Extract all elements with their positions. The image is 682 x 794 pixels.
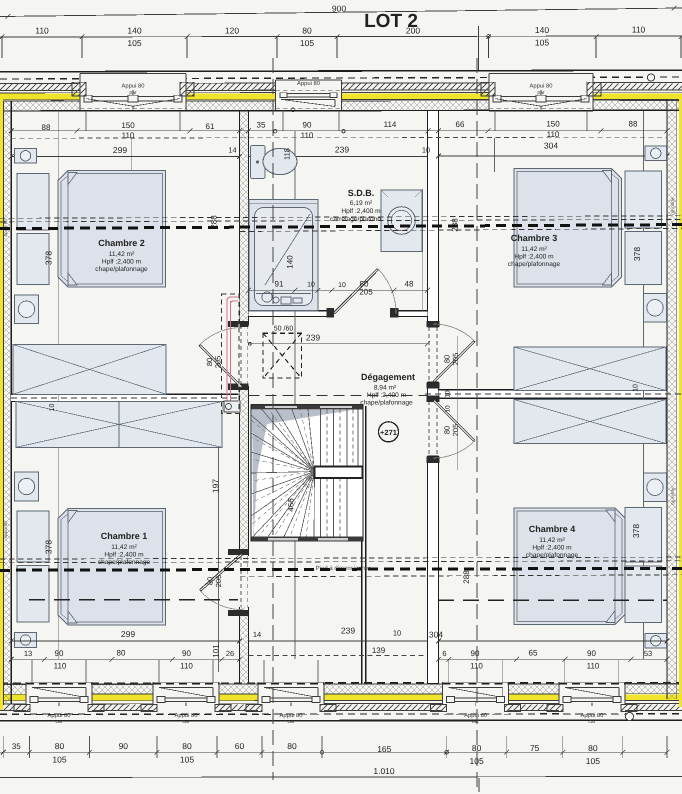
- svg-text:90: 90: [55, 649, 64, 658]
- svg-text:304: 304: [544, 141, 558, 151]
- svg-text:65: 65: [529, 649, 538, 658]
- svg-text:200: 200: [406, 26, 420, 36]
- svg-text:Dégagement: Dégagement: [361, 372, 415, 382]
- svg-text:80: 80: [55, 741, 65, 751]
- svg-text:11,42 m²: 11,42 m²: [111, 544, 137, 551]
- svg-text:110: 110: [632, 25, 646, 35]
- svg-text:Appui 80: Appui 80: [122, 83, 145, 90]
- svg-text:114: 114: [384, 120, 397, 129]
- svg-text:10: 10: [445, 405, 452, 413]
- svg-text:Appui 80: Appui 80: [530, 83, 553, 90]
- svg-text:Chambre 1: Chambre 1: [101, 531, 148, 541]
- svg-text:66: 66: [456, 120, 465, 129]
- svg-text:110: 110: [35, 26, 49, 36]
- svg-text:1.010: 1.010: [373, 766, 395, 776]
- svg-text:Hplf :2,400 m: Hplf :2,400 m: [532, 545, 572, 552]
- svg-text:110: 110: [587, 662, 600, 671]
- svg-text:10: 10: [393, 629, 401, 638]
- svg-text:Chambre 3: Chambre 3: [511, 233, 558, 243]
- svg-text:140: 140: [535, 25, 549, 35]
- svg-text:11,42 m²: 11,42 m²: [109, 251, 135, 258]
- svg-text:150: 150: [121, 121, 135, 130]
- svg-text:Hplf :2,400 m: Hplf :2,400 m: [104, 552, 144, 559]
- svg-text:239: 239: [306, 333, 320, 343]
- svg-text:88: 88: [629, 120, 638, 129]
- svg-text:Chambre 2: Chambre 2: [98, 238, 145, 248]
- svg-text:150: 150: [546, 120, 560, 129]
- svg-text:105: 105: [535, 38, 549, 48]
- svg-text:+271: +271: [380, 428, 397, 437]
- svg-text:chape/plafonnage: chape/plafonnage: [360, 400, 413, 407]
- svg-text:299: 299: [121, 629, 135, 639]
- svg-text:80: 80: [588, 743, 598, 753]
- svg-text:10: 10: [338, 282, 346, 289]
- svg-text:110: 110: [54, 662, 67, 671]
- svg-text:900: 900: [332, 4, 346, 14]
- svg-text:304: 304: [429, 630, 443, 640]
- svg-text:11,42 m²: 11,42 m²: [521, 246, 547, 253]
- svg-text:90: 90: [119, 741, 129, 751]
- svg-text:Hplf :2,400 m: Hplf :2,400 m: [102, 259, 142, 266]
- svg-text:139: 139: [372, 646, 386, 655]
- svg-text:car: car: [472, 719, 479, 725]
- svg-text:8,94 m²: 8,94 m²: [374, 385, 397, 392]
- svg-text:105: 105: [127, 38, 141, 48]
- svg-text:14: 14: [253, 630, 261, 639]
- svg-text:299: 299: [113, 145, 127, 155]
- svg-text:80: 80: [302, 26, 312, 36]
- svg-text:par: par: [129, 90, 137, 96]
- svg-text:48: 48: [405, 280, 414, 289]
- svg-text:car: car: [183, 719, 190, 725]
- svg-text:105: 105: [52, 755, 66, 765]
- svg-text:288: 288: [451, 218, 460, 232]
- svg-text:35: 35: [257, 121, 266, 130]
- svg-text:197: 197: [211, 479, 221, 493]
- svg-text:6,19 m²: 6,19 m²: [350, 200, 373, 207]
- svg-text:105: 105: [180, 755, 194, 765]
- svg-text:90: 90: [303, 121, 312, 130]
- svg-text:Hplf :2,400 m: Hplf :2,400 m: [341, 208, 381, 215]
- svg-text:car: car: [288, 719, 295, 725]
- svg-text:91: 91: [275, 280, 284, 289]
- svg-text:165: 165: [377, 744, 391, 754]
- svg-text:80: 80: [287, 741, 297, 751]
- svg-text:80: 80: [182, 741, 192, 751]
- svg-text:88: 88: [42, 123, 51, 132]
- svg-text:10: 10: [633, 384, 640, 392]
- svg-text:90: 90: [587, 649, 596, 658]
- svg-text:61: 61: [206, 122, 215, 131]
- svg-text:101: 101: [212, 644, 221, 658]
- svg-text:120: 120: [225, 26, 239, 36]
- svg-text:10: 10: [49, 404, 56, 412]
- svg-text:14: 14: [228, 146, 236, 155]
- svg-text:105: 105: [470, 756, 484, 766]
- svg-text:378: 378: [44, 251, 54, 265]
- svg-text:110: 110: [301, 131, 314, 140]
- svg-text:90: 90: [182, 649, 191, 658]
- svg-text:10: 10: [445, 390, 452, 398]
- svg-text:chape/plafonnage: chape/plafonnage: [98, 559, 151, 566]
- svg-text:Hplf :2,400 m: Hplf :2,400 m: [514, 254, 554, 261]
- svg-text:car: car: [56, 719, 63, 725]
- svg-text:10: 10: [422, 146, 430, 155]
- svg-text:140: 140: [286, 255, 295, 269]
- svg-text:S.D.B.: S.D.B.: [348, 188, 375, 198]
- svg-text:35: 35: [12, 742, 21, 751]
- svg-text:140: 140: [127, 26, 141, 36]
- svg-text:378: 378: [44, 540, 54, 554]
- svg-text:105: 105: [300, 38, 314, 48]
- svg-text:53: 53: [644, 649, 652, 658]
- svg-text:118: 118: [283, 148, 292, 160]
- svg-text:205: 205: [451, 424, 460, 437]
- svg-text:466: 466: [287, 498, 296, 512]
- svg-text:Appui 80: Appui 80: [671, 197, 676, 215]
- svg-text:13: 13: [24, 649, 32, 658]
- svg-text:60: 60: [235, 741, 245, 751]
- svg-text:205: 205: [359, 288, 373, 297]
- svg-text:75: 75: [530, 743, 540, 753]
- svg-text:90: 90: [471, 649, 480, 658]
- svg-text:80: 80: [117, 649, 126, 658]
- svg-text:378: 378: [632, 247, 642, 261]
- svg-text:50 /60: 50 /60: [274, 325, 294, 333]
- svg-text:26: 26: [226, 649, 234, 658]
- svg-text:239: 239: [341, 626, 355, 636]
- svg-text:par: par: [537, 90, 545, 96]
- svg-text:110: 110: [180, 662, 193, 671]
- svg-text:chape/plafonnage: chape/plafonnage: [95, 266, 148, 273]
- svg-text:205: 205: [214, 356, 223, 369]
- svg-text:Appui 80: Appui 80: [297, 80, 320, 87]
- svg-text:chape/plafonnage: chape/plafonnage: [508, 261, 561, 268]
- svg-text:Appui 80: Appui 80: [3, 521, 8, 539]
- svg-text:288: 288: [210, 215, 219, 229]
- svg-text:Chambre 4: Chambre 4: [529, 524, 576, 534]
- svg-text:205: 205: [214, 575, 223, 588]
- svg-text:chape/plafonnage: chape/plafonnage: [526, 552, 579, 559]
- svg-text:105: 105: [586, 756, 600, 766]
- svg-text:239: 239: [335, 145, 349, 155]
- svg-text:6: 6: [442, 649, 446, 658]
- svg-text:80: 80: [472, 743, 482, 753]
- svg-text:378: 378: [631, 524, 641, 538]
- svg-text:11,42 m²: 11,42 m²: [539, 537, 565, 544]
- svg-text:288: 288: [462, 570, 471, 584]
- svg-text:10: 10: [307, 282, 315, 289]
- svg-text:Appui 80: Appui 80: [671, 487, 676, 505]
- svg-text:110: 110: [122, 131, 135, 140]
- svg-text:205: 205: [451, 353, 460, 366]
- svg-text:car: car: [588, 719, 595, 725]
